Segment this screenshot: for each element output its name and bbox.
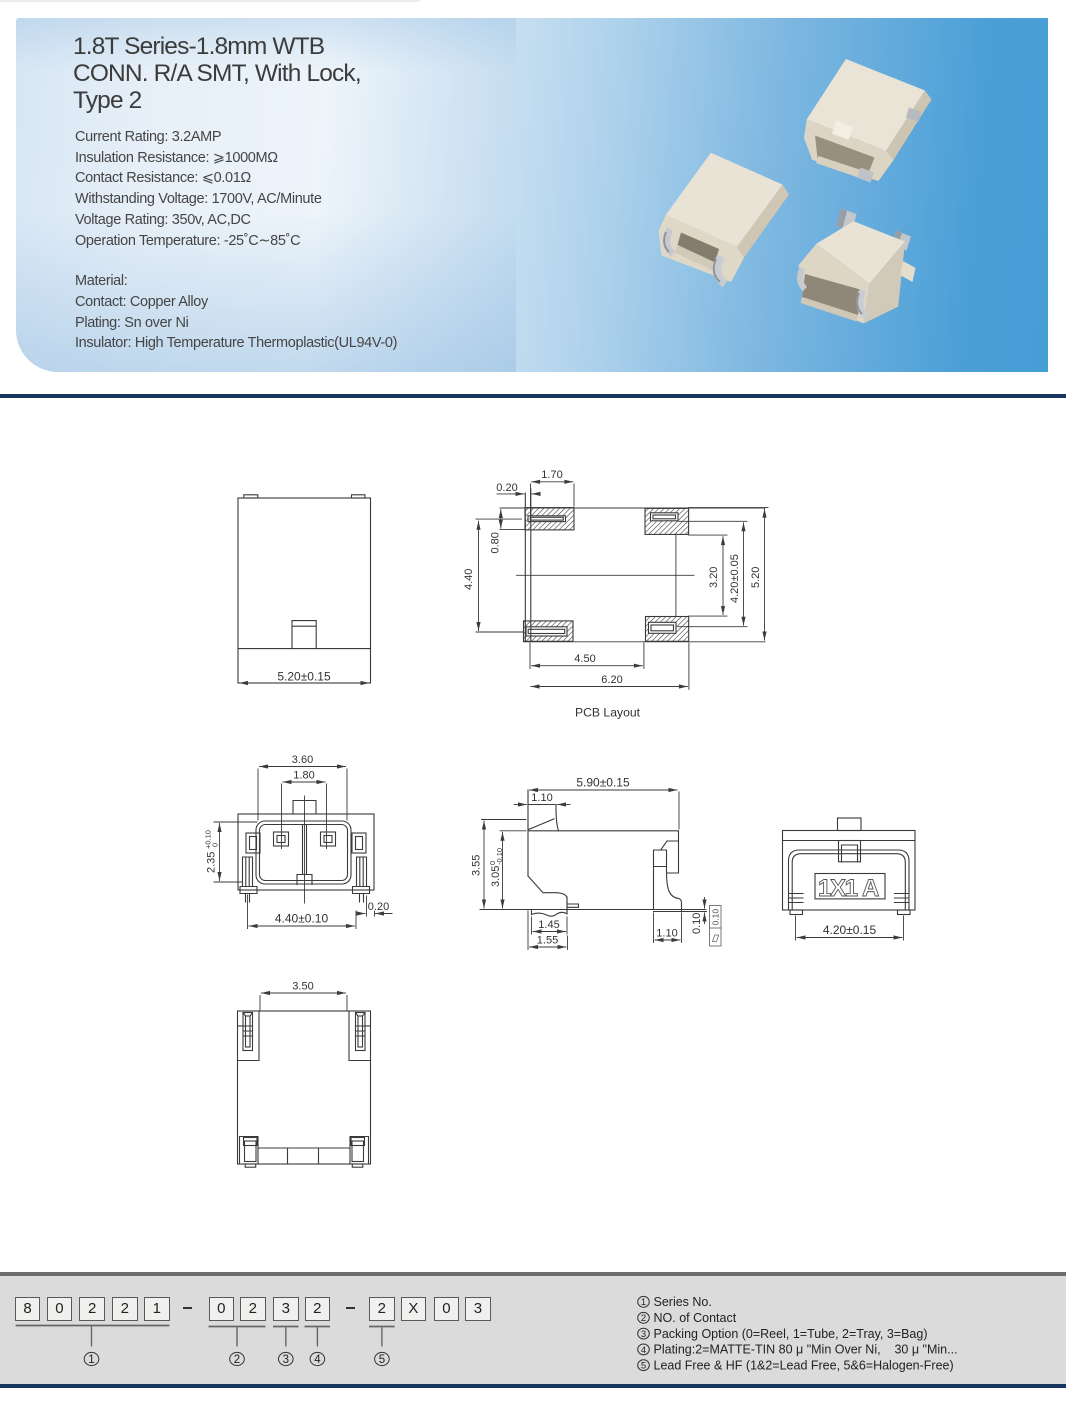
svg-text:1: 1 (88, 1354, 94, 1366)
svg-text:PCB Layout: PCB Layout (575, 706, 641, 720)
svg-text:4.40: 4.40 (463, 569, 475, 590)
svg-text:5.90±0.15: 5.90±0.15 (576, 776, 630, 790)
svg-text:3.60: 3.60 (292, 754, 313, 766)
svg-text:6.20: 6.20 (601, 674, 622, 686)
svg-text:5: 5 (641, 1361, 646, 1372)
svg-text:0.10: 0.10 (691, 913, 703, 934)
svg-text:Plating:2=MATTE-TIN 80 μ "Min: Plating:2=MATTE-TIN 80 μ "Min Over Ni, 3… (654, 1343, 958, 1357)
svg-text:3: 3 (641, 1329, 646, 1340)
svg-text:4.20±0.15: 4.20±0.15 (823, 923, 877, 937)
svg-text:4.50: 4.50 (574, 653, 595, 665)
svg-text:2: 2 (641, 1313, 646, 1324)
svg-text:0: 0 (211, 843, 220, 847)
svg-text:1: 1 (641, 1297, 646, 1308)
svg-text:1X1: 1X1 (818, 875, 858, 902)
svg-text:-0.10: -0.10 (495, 848, 504, 865)
svg-text:Lead Free & HF (1&2=Lead Free,: Lead Free & HF (1&2=Lead Free, 5&6=Halog… (654, 1358, 954, 1372)
svg-text:A: A (862, 875, 879, 902)
svg-text:1.70: 1.70 (541, 469, 562, 481)
svg-text:4.20±0.05: 4.20±0.05 (729, 554, 741, 603)
svg-text:2.35: 2.35 (206, 852, 218, 873)
svg-text:5: 5 (379, 1354, 385, 1366)
svg-text:1.10: 1.10 (531, 792, 552, 804)
svg-text:0.20: 0.20 (496, 482, 517, 494)
svg-text:0.10: 0.10 (711, 909, 721, 926)
svg-text:3: 3 (283, 1354, 289, 1366)
svg-text:1.80: 1.80 (293, 770, 314, 782)
svg-text:4: 4 (641, 1345, 646, 1356)
svg-text:3.50: 3.50 (292, 981, 313, 993)
svg-text:0.80: 0.80 (490, 532, 502, 553)
svg-text:4.40±0.10: 4.40±0.10 (275, 912, 329, 926)
svg-text:NO. of Contact: NO. of Contact (654, 1311, 737, 1325)
svg-text:Series No.: Series No. (654, 1295, 712, 1309)
svg-text:3.20: 3.20 (708, 567, 720, 588)
svg-text:1.55: 1.55 (537, 935, 558, 947)
svg-text:4: 4 (314, 1354, 321, 1366)
svg-text:2: 2 (234, 1354, 240, 1366)
svg-text:3.05: 3.05 (490, 866, 502, 887)
svg-text:1.10: 1.10 (656, 927, 677, 939)
svg-text:3.55: 3.55 (471, 855, 483, 876)
svg-text:5.20±0.15: 5.20±0.15 (277, 670, 331, 684)
svg-text:1.45: 1.45 (538, 919, 559, 931)
svg-text:Packing Option (0=Reel, 1=Tube: Packing Option (0=Reel, 1=Tube, 2=Tray, … (654, 1327, 928, 1341)
svg-text:0.20: 0.20 (368, 901, 389, 913)
svg-text:5.20: 5.20 (750, 567, 762, 588)
